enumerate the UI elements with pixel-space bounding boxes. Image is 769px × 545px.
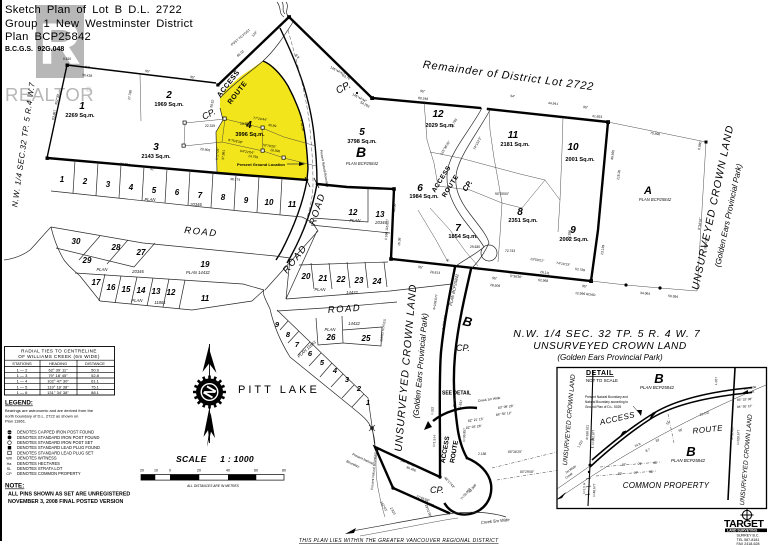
svg-text:07': 07' xyxy=(634,471,639,475)
svg-text:17: 17 xyxy=(92,278,101,287)
svg-text:14432: 14432 xyxy=(348,321,360,326)
svg-text:1 — 4: 1 — 4 xyxy=(17,379,28,384)
svg-text:PLAN BCP25842: PLAN BCP25842 xyxy=(640,385,674,390)
svg-text:4: 4 xyxy=(128,183,134,192)
svg-text:48.174: 48.174 xyxy=(230,177,241,182)
svg-text:PLAN: PLAN xyxy=(145,197,157,202)
svg-text:L.027: L.027 xyxy=(714,377,718,385)
svg-text:3: 3 xyxy=(106,180,111,189)
svg-text:23: 23 xyxy=(354,276,364,285)
svg-text:PLAN: PLAN xyxy=(325,327,337,332)
svg-text:6: 6 xyxy=(175,188,180,197)
svg-text:NOTE:: NOTE: xyxy=(5,483,24,490)
svg-text:SCALE 1 : 1000: SCALE 1 : 1000 xyxy=(176,454,254,464)
svg-text:11: 11 xyxy=(508,130,519,141)
svg-text:1: 1 xyxy=(60,175,65,184)
svg-text:34.064: 34.064 xyxy=(640,291,651,296)
svg-text:PITT LAKE: PITT LAKE xyxy=(238,384,320,396)
svg-text:9: 9 xyxy=(244,196,249,205)
svg-text:2269 Sq.m.: 2269 Sq.m. xyxy=(65,113,95,119)
svg-text:COMMON PROPERTY: COMMON PROPERTY xyxy=(623,481,710,490)
svg-text:1=1.5 H: 1=1.5 H xyxy=(582,482,586,494)
svg-text:(Golden Ears Provincial Par: (Golden Ears Provincial Park) xyxy=(557,353,663,362)
svg-text:60: 60 xyxy=(254,469,258,473)
svg-text:PLAN: PLAN xyxy=(132,298,144,303)
svg-text:14432: 14432 xyxy=(346,290,358,295)
svg-text:Group 1 New Westminster Distri: Group 1 New Westminster District xyxy=(5,18,193,30)
svg-text:2143 Sq.m.: 2143 Sq.m. xyxy=(141,154,171,160)
svg-text:12: 12 xyxy=(349,208,358,217)
svg-text:NOT TO SCALE: NOT TO SCALE xyxy=(586,378,618,383)
svg-text:12: 12 xyxy=(432,109,444,120)
svg-text:Ground Plan of D.L. 5025: Ground Plan of D.L. 5025 xyxy=(585,405,621,409)
svg-text:1: 1 xyxy=(366,398,370,407)
svg-text:A: A xyxy=(643,185,652,197)
svg-text:5: 5 xyxy=(359,127,365,138)
svg-text:2001 Sq.m.: 2001 Sq.m. xyxy=(565,157,595,163)
svg-text:88.1: 88.1 xyxy=(91,390,100,395)
svg-text:OF WILLIAMS CREEK (6m WIDE: OF WILLIAMS CREEK (6m WIDE) xyxy=(18,354,100,359)
svg-text:22.319: 22.319 xyxy=(205,124,215,128)
svg-text:1=36.857: 1=36.857 xyxy=(462,428,467,442)
svg-text:Sketch Plan of Lot B D.L. 2722: Sketch Plan of Lot B D.L. 2722 xyxy=(5,4,182,16)
svg-text:NOVEMBER 3, 2008 FINAL POS: NOVEMBER 3, 2008 FINAL POSTED VERSION xyxy=(8,499,123,505)
svg-text:75.1: 75.1 xyxy=(91,384,100,389)
svg-text:Present Ground Location: Present Ground Location xyxy=(237,162,286,167)
svg-text:80°29'08": 80°29'08" xyxy=(520,470,535,474)
svg-text:CP: CP xyxy=(6,472,12,476)
svg-text:90°00'00": 90°00'00" xyxy=(495,192,510,196)
svg-text:1 — 5: 1 — 5 xyxy=(17,384,28,389)
svg-text:131° 34' 38": 131° 34' 38" xyxy=(47,390,69,395)
svg-text:1=48.677: 1=48.677 xyxy=(592,483,596,497)
svg-text:13: 13 xyxy=(376,210,385,219)
svg-text:CP.: CP. xyxy=(430,485,444,495)
svg-text:102° 47' 30": 102° 47' 30" xyxy=(47,379,69,384)
svg-text:1969 Sq.m.: 1969 Sq.m. xyxy=(154,102,184,108)
svg-text:12: 12 xyxy=(167,288,176,297)
svg-text:DISTANCE: DISTANCE xyxy=(85,361,105,366)
svg-text:11: 11 xyxy=(288,200,297,209)
svg-text:60.36: 60.36 xyxy=(392,203,397,212)
svg-text:2: 2 xyxy=(165,90,172,101)
svg-text:UNSURVEYED CROWN LAND: UNSURVEYED CROWN LAND xyxy=(533,341,687,352)
svg-text:STATIONS: STATIONS xyxy=(12,361,32,366)
svg-text:30: 30 xyxy=(72,237,81,246)
svg-text:1=1.5 H: 1=1.5 H xyxy=(432,435,437,447)
svg-text:SL: SL xyxy=(7,467,12,471)
svg-text:B: B xyxy=(356,144,366,160)
svg-text:10: 10 xyxy=(567,142,579,153)
svg-text:5: 5 xyxy=(152,186,157,195)
svg-text:20: 20 xyxy=(197,469,201,473)
svg-text:26: 26 xyxy=(326,333,336,342)
svg-text:19: 19 xyxy=(201,260,210,269)
svg-text:20: 20 xyxy=(140,469,144,473)
svg-text:4=188.021: 4=188.021 xyxy=(585,425,590,441)
svg-text:2: 2 xyxy=(82,177,88,186)
svg-text:2002 Sq.m.: 2002 Sq.m. xyxy=(559,237,589,243)
svg-text:62° 39' 11": 62° 39' 11" xyxy=(48,367,68,372)
svg-text:ALL PINS SHOWN AS SET ARE: ALL PINS SHOWN AS SET ARE UNREGISTERED xyxy=(8,491,130,497)
svg-text:1=242.877: 1=242.877 xyxy=(591,430,596,446)
svg-text:16: 16 xyxy=(107,283,116,292)
svg-text:7: 7 xyxy=(198,191,203,200)
svg-text:PLAN BCP25842: PLAN BCP25842 xyxy=(671,458,705,463)
svg-text:Bearings are astronomic and: Bearings are astronomic and are derived … xyxy=(5,408,94,413)
svg-text:2351 Sq.m.: 2351 Sq.m. xyxy=(508,218,538,224)
svg-text:16.36': 16.36' xyxy=(397,237,402,247)
svg-text:B: B xyxy=(654,371,663,386)
svg-text:20: 20 xyxy=(301,272,311,281)
svg-text:CP.: CP. xyxy=(456,343,470,353)
svg-text:2: 2 xyxy=(356,384,362,393)
svg-text:0: 0 xyxy=(169,469,171,473)
svg-text:LAND SURVEYING: LAND SURVEYING xyxy=(727,529,758,533)
svg-text:PLAN BCP25842: PLAN BCP25842 xyxy=(346,161,379,166)
svg-text:52.8: 52.8 xyxy=(91,373,100,378)
svg-text:22: 22 xyxy=(336,275,346,284)
svg-text:11861: 11861 xyxy=(154,300,165,305)
svg-text:10: 10 xyxy=(154,469,158,473)
svg-text:24: 24 xyxy=(372,277,382,286)
svg-text:PLAN: PLAN xyxy=(315,287,327,292)
svg-text:28: 28 xyxy=(111,243,121,252)
svg-text:1 — 6: 1 — 6 xyxy=(17,390,28,395)
svg-text:Plan BCP25842: Plan BCP25842 xyxy=(5,31,91,43)
svg-text:21: 21 xyxy=(318,274,328,283)
svg-text:HEADING: HEADING xyxy=(49,361,67,366)
svg-text:DENOTES COMMON PROPERTY: DENOTES COMMON PROPERTY xyxy=(17,471,81,476)
svg-text:43': 43' xyxy=(653,461,658,465)
svg-text:50.594: 50.594 xyxy=(668,294,679,299)
svg-text:14: 14 xyxy=(137,286,146,295)
svg-text:79° 18' 45": 79° 18' 45" xyxy=(48,373,68,378)
svg-text:PLAN 14432: PLAN 14432 xyxy=(186,270,210,275)
svg-text:72.743: 72.743 xyxy=(505,249,515,253)
svg-text:PLAN: PLAN xyxy=(350,218,362,223)
svg-text:3: 3 xyxy=(153,142,159,153)
svg-text:13.383: 13.383 xyxy=(240,122,250,126)
svg-text:PLAN: PLAN xyxy=(97,267,109,272)
svg-text:8: 8 xyxy=(221,193,226,202)
svg-text:1.322: 1.322 xyxy=(430,406,435,415)
svg-text:PLAN BCP25842: PLAN BCP25842 xyxy=(639,197,672,202)
svg-text:27: 27 xyxy=(136,248,146,257)
svg-text:50.9: 50.9 xyxy=(91,367,100,372)
svg-text:0.810: 0.810 xyxy=(63,57,71,61)
svg-text:10: 10 xyxy=(265,198,274,207)
svg-text:15: 15 xyxy=(122,285,131,294)
svg-text:B.C.G.S. 92G.048: B.C.G.S. 92G.048 xyxy=(5,46,64,53)
svg-text:25: 25 xyxy=(361,334,371,343)
svg-text:1 — 3: 1 — 3 xyxy=(17,373,28,378)
svg-text:ROAD: ROAD xyxy=(327,303,361,316)
svg-text:north boundary of D.L. 272: north boundary of D.L. 2722 as shown on xyxy=(5,413,78,418)
svg-text:21': 21' xyxy=(638,462,643,466)
svg-text:40: 40 xyxy=(226,469,230,473)
svg-text:LEGEND:: LEGEND: xyxy=(5,400,33,407)
svg-text:20346: 20346 xyxy=(189,202,202,207)
svg-text:80: 80 xyxy=(282,469,286,473)
svg-text:N.W. 1/4 SEC. 32 TP. 5 R: N.W. 1/4 SEC. 32 TP. 5 R. 4 W. 7 xyxy=(513,328,701,340)
svg-text:29: 29 xyxy=(82,256,92,265)
svg-text:ALL DISTANCES ARE IN METRE: ALL DISTANCES ARE IN METRES xyxy=(186,484,240,488)
svg-text:DETAIL: DETAIL xyxy=(586,370,614,377)
svg-text:3996 Sq.m.: 3996 Sq.m. xyxy=(235,132,265,138)
svg-text:85°36'25": 85°36'25" xyxy=(508,450,523,454)
svg-text:1: 1 xyxy=(79,101,85,112)
svg-text:8: 8 xyxy=(517,207,523,218)
svg-text:61.1: 61.1 xyxy=(91,379,100,384)
svg-text:119° 18' 38": 119° 18' 38" xyxy=(47,384,69,389)
svg-text:11: 11 xyxy=(201,294,210,303)
svg-text:RADIAL TIES TO CENTRELINE: RADIAL TIES TO CENTRELINE xyxy=(21,348,97,353)
svg-text:Natural Boundary according to: Natural Boundary according to xyxy=(585,400,628,404)
svg-text:4: 4 xyxy=(332,366,338,375)
svg-text:36': 36' xyxy=(649,470,654,474)
svg-text:1 — 2: 1 — 2 xyxy=(17,367,28,372)
svg-text:B: B xyxy=(686,444,695,459)
svg-text:20346: 20346 xyxy=(131,269,144,274)
svg-text:13: 13 xyxy=(152,287,161,296)
svg-text:SEE DETAIL: SEE DETAIL xyxy=(442,391,471,397)
svg-text:®: ® xyxy=(86,86,92,94)
svg-text:THIS PLAN LIES WITHIN THE GREA: THIS PLAN LIES WITHIN THE GREATER VANCOU… xyxy=(299,538,499,544)
svg-text:Wit: Wit xyxy=(6,457,12,461)
svg-text:1=328.677: 1=328.677 xyxy=(736,430,741,446)
svg-text:1984 Sq.m.: 1984 Sq.m. xyxy=(409,194,439,200)
svg-text:Plan 11861.: Plan 11861. xyxy=(5,419,26,424)
svg-text:3=35.457: 3=35.457 xyxy=(730,426,734,440)
svg-text:6: 6 xyxy=(417,183,423,194)
svg-text:Present Natural Boundary and: Present Natural Boundary and xyxy=(585,395,628,399)
svg-text:2.188: 2.188 xyxy=(478,452,486,456)
svg-text:1854 Sq.m.: 1854 Sq.m. xyxy=(448,234,478,240)
svg-text:7: 7 xyxy=(455,223,461,234)
svg-text:29.630: 29.630 xyxy=(470,245,480,249)
svg-text:2181 Sq.m.: 2181 Sq.m. xyxy=(500,142,530,148)
